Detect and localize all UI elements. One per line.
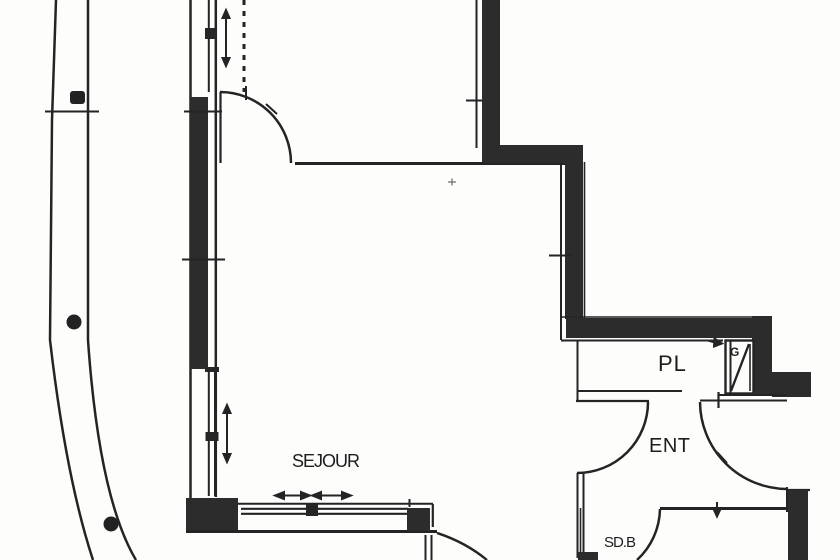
svg-text:G: G xyxy=(730,345,739,359)
svg-text:PL: PL xyxy=(658,351,687,376)
svg-text:SEJOUR: SEJOUR xyxy=(292,451,360,471)
svg-text:SD.B: SD.B xyxy=(604,534,636,551)
svg-text:ENT: ENT xyxy=(649,435,691,457)
